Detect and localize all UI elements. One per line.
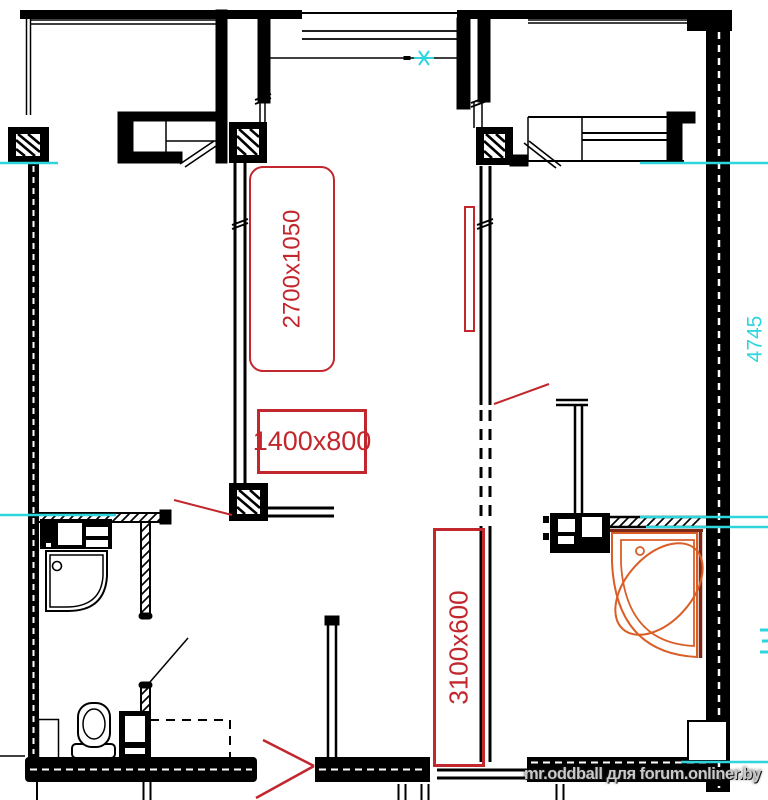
dimension-label-3100x600: 3100x600	[433, 528, 485, 767]
dimension-label-2700x1050: 2700x1050	[249, 166, 335, 372]
axis-star	[414, 51, 434, 65]
watermark: mr.oddball для forum.onliner.by	[524, 765, 761, 784]
bathroom-wall-vertical-upper	[139, 523, 152, 619]
corner-bathtub	[598, 527, 719, 658]
column-a	[229, 122, 267, 163]
pointer-line-wall	[494, 384, 549, 404]
dimension-label-1400x800-text: 1400x800	[253, 426, 372, 457]
door-arrow-lower	[256, 766, 314, 798]
floor-plan-page: 2700x1050 1400x800 3100x600 4745 mr.oddb…	[0, 0, 768, 800]
vanity-sink	[40, 519, 112, 549]
loggia-left	[27, 14, 220, 167]
appliance-dashed	[150, 720, 230, 757]
washbasin-right	[543, 513, 610, 553]
door-arrow-upper	[263, 740, 314, 766]
floor-plan-drawing	[0, 0, 768, 800]
dimension-label-1400x800: 1400x800	[257, 409, 367, 474]
entry-niche	[688, 721, 727, 761]
dimension-label-3100x600-text: 3100x600	[444, 590, 475, 704]
washbasin-cabinet	[119, 711, 151, 758]
dimension-4745-text: 4745	[743, 316, 767, 363]
column-left	[8, 127, 49, 164]
bathroom-cabinet-outline	[39, 720, 59, 758]
highlight-strip	[465, 207, 474, 331]
pointer-line-column	[174, 500, 232, 515]
dimension-4745: 4745	[712, 326, 768, 352]
cut-off-text-fragment	[760, 630, 768, 652]
bathtub-wall	[608, 517, 706, 527]
cyan-marks	[0, 51, 768, 762]
interior-walls	[150, 163, 588, 762]
loggia-right	[510, 20, 706, 168]
shower-tray	[46, 551, 107, 611]
toilet	[72, 703, 115, 758]
column-c	[229, 483, 268, 521]
column-b	[476, 127, 513, 165]
dimension-label-2700x1050-text: 2700x1050	[278, 210, 306, 329]
